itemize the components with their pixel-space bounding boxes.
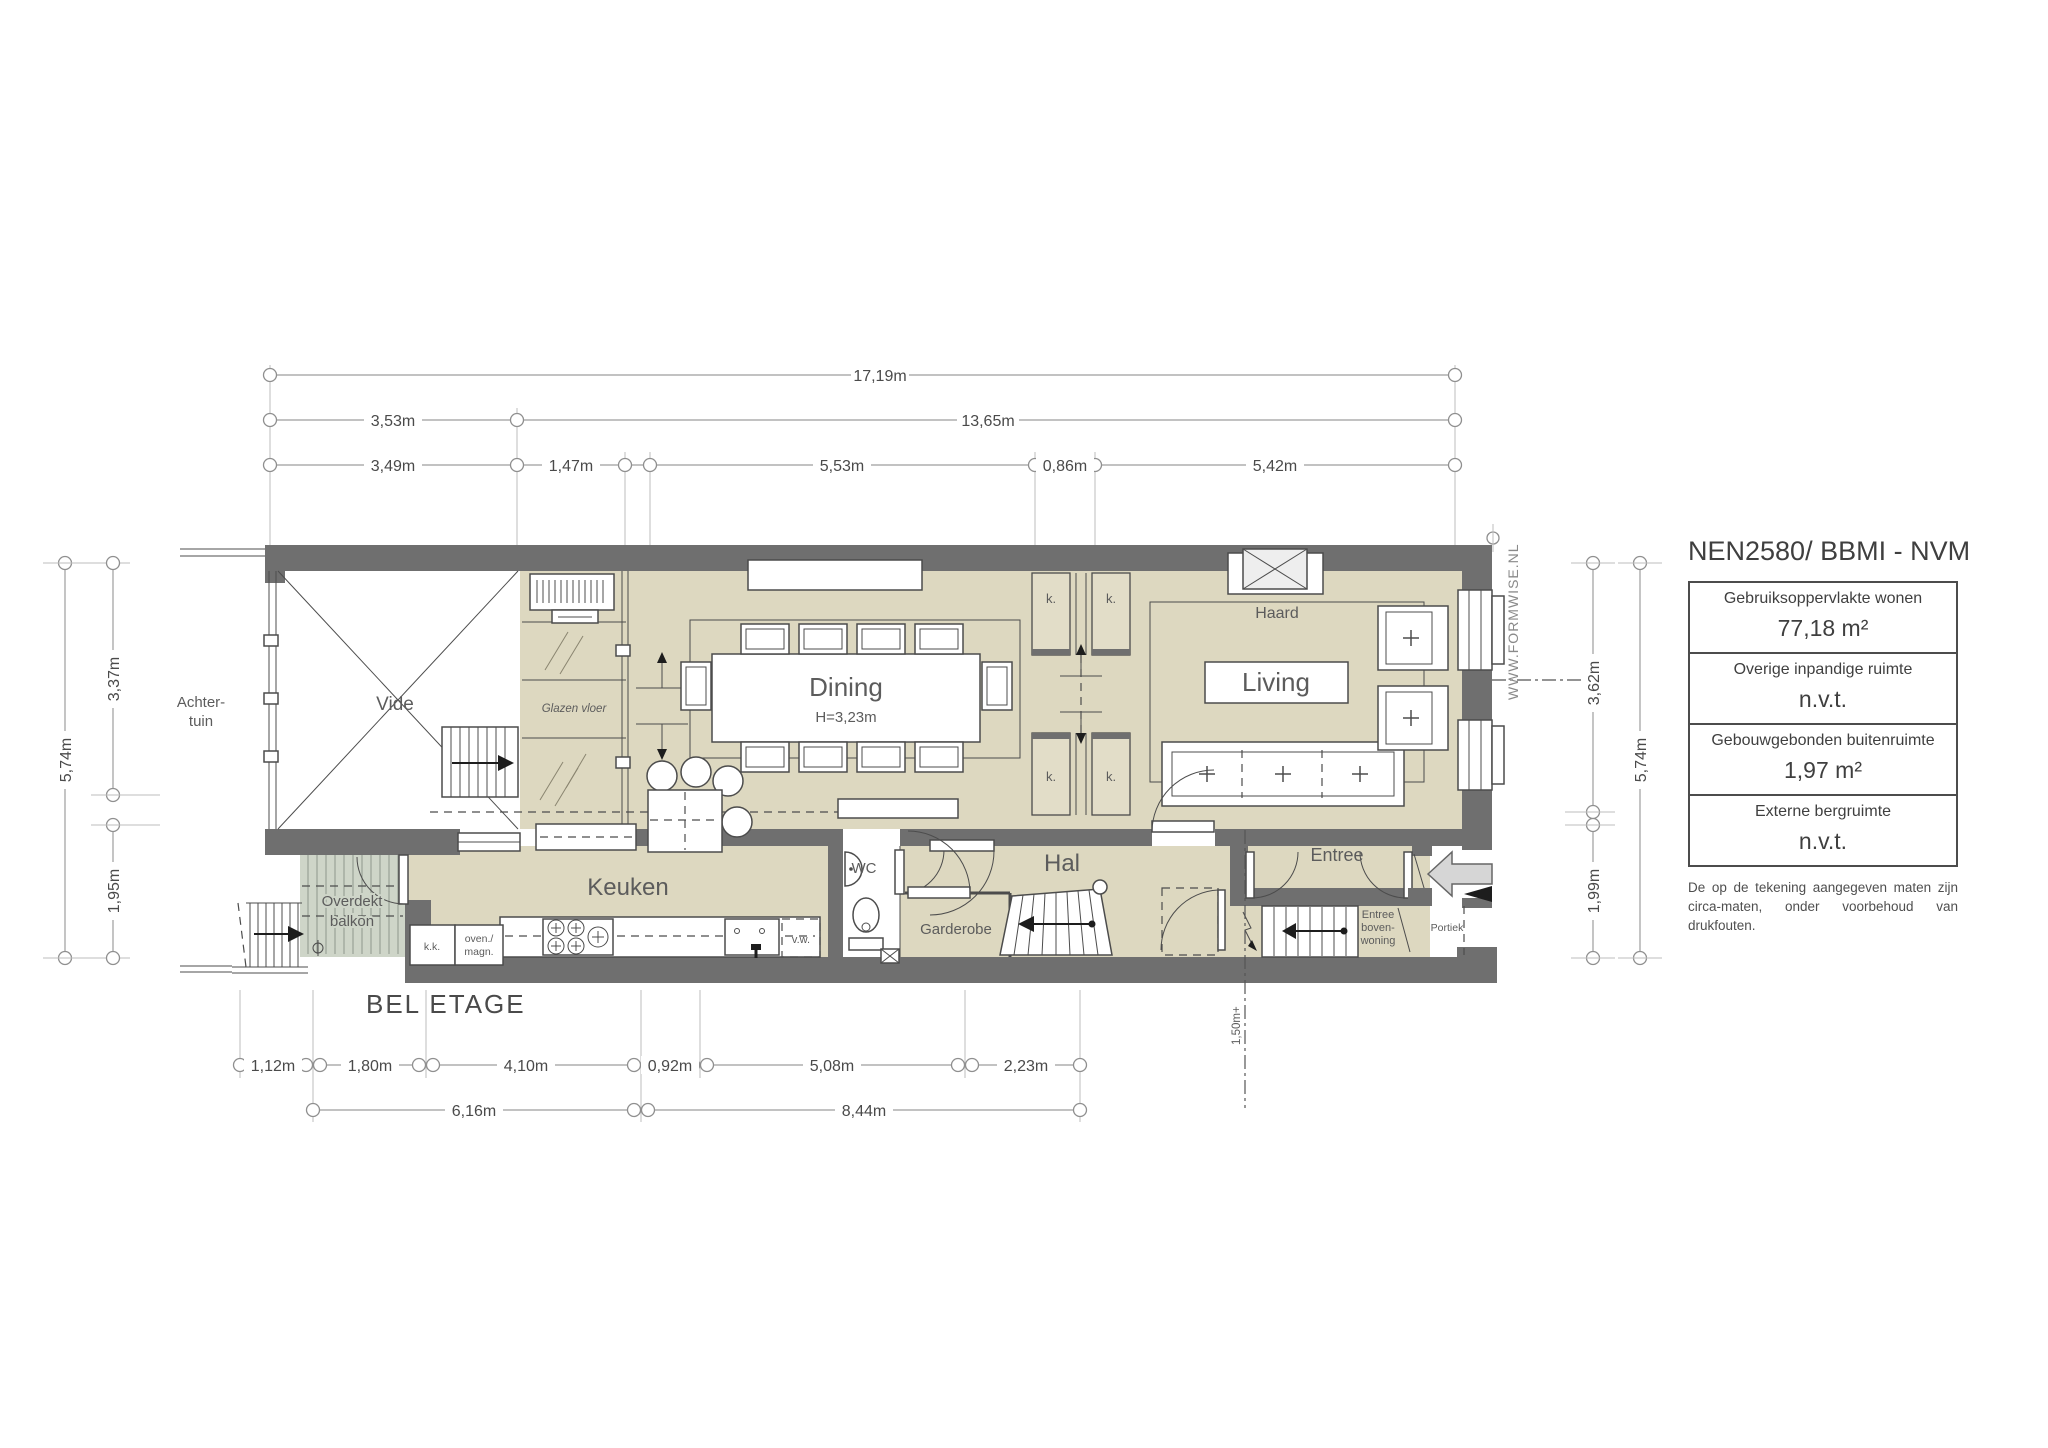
label-oven-1: oven./ (465, 933, 494, 945)
dim-top-a: 3,53m (371, 413, 415, 430)
dim-top-b: 13,65m (961, 413, 1014, 430)
legend-row-wonen: Gebruiksoppervlakte wonen 77,18 m² (1690, 583, 1956, 654)
legend-row-value: 1,97 m² (1694, 757, 1952, 784)
label-portiek: Portiek (1431, 922, 1464, 934)
label-dining-height: H=3,23m (815, 709, 876, 726)
dim-bot-c: 4,10m (504, 1058, 548, 1075)
label-bovenwoning-1: Entree (1362, 909, 1394, 921)
label-oven-2: magn. (464, 946, 493, 958)
dim-right-b: 1,99m (1586, 869, 1603, 913)
label-glazen-vloer: Glazen vloer (542, 703, 608, 715)
legend-row-label: Overige inpandige ruimte (1694, 661, 1952, 679)
label-balkon-1: Overdekt (322, 893, 384, 910)
label-achtertuin-2: tuin (189, 713, 213, 730)
label-kast-1: k. (1046, 591, 1056, 606)
dim-top-c3: 5,53m (820, 458, 864, 475)
watermark-text: WWW.FORMWISE.NL (1505, 543, 1521, 700)
floorplan-page: 17,19m 3,53m 13,65m 3,49m 1,47m 5,53m 0,… (0, 0, 2048, 1448)
dim-bot-h: 8,44m (842, 1103, 886, 1120)
label-koelkast: k.k. (424, 941, 440, 953)
dim-right-outer: 5,74m (1633, 738, 1650, 782)
dim-bot-g: 6,16m (452, 1103, 496, 1120)
dim-top-c2: 1,47m (549, 458, 593, 475)
dim-bot-d: 0,92m (648, 1058, 692, 1075)
dim-right-a: 3,62m (1586, 661, 1603, 705)
legend-row-buitenruimte: Gebouwgebonden buitenruimte 1,97 m² (1690, 725, 1956, 796)
legend-disclaimer: De op de tekening aangegeven maten zijn … (1688, 879, 1958, 936)
legend-row-value: n.v.t. (1694, 828, 1952, 855)
dim-bot-a: 1,12m (251, 1058, 295, 1075)
label-entree: Entree (1310, 845, 1363, 865)
legend-row-label: Externe bergruimte (1694, 803, 1952, 821)
dim-bot-e: 5,08m (810, 1058, 854, 1075)
label-bovenwoning-3: woning (1360, 935, 1396, 947)
dim-top-c5: 5,42m (1253, 458, 1297, 475)
floor-title: BEL ETAGE (366, 989, 526, 1019)
legend-table: Gebruiksoppervlakte wonen 77,18 m² Overi… (1688, 581, 1958, 867)
label-garderobe: Garderobe (920, 921, 992, 938)
legend-panel: NEN2580/ BBMI - NVM Gebruiksoppervlakte … (1688, 536, 1960, 936)
legend-title: NEN2580/ BBMI - NVM (1688, 536, 1960, 567)
dim-top-c4: 0,86m (1043, 458, 1087, 475)
dim-top-total: 17,19m (853, 368, 906, 385)
legend-row-value: 77,18 m² (1694, 615, 1952, 642)
label-vide: Vide (376, 694, 414, 715)
label-kast-3: k. (1046, 769, 1056, 784)
label-balkon-2: balkon (330, 913, 374, 930)
dim-bot-b: 1,80m (348, 1058, 392, 1075)
label-bovenwoning-2: boven- (1361, 922, 1395, 934)
legend-row-value: n.v.t. (1694, 686, 1952, 713)
label-keuken: Keuken (587, 874, 668, 901)
legend-row-label: Gebruiksoppervlakte wonen (1694, 590, 1952, 608)
label-vaatwasser: v.w. (792, 934, 810, 946)
label-living: Living (1242, 667, 1310, 697)
label-wc: WC (852, 860, 877, 877)
dim-bot-f: 2,23m (1004, 1058, 1048, 1075)
label-achtertuin-1: Achter- (177, 694, 225, 711)
label-dining: Dining (809, 672, 883, 702)
dim-left-b: 1,95m (106, 869, 123, 913)
label-kast-2: k. (1106, 591, 1116, 606)
label-hal: Hal (1044, 850, 1080, 877)
label-haard: Haard (1255, 605, 1299, 622)
legend-row-bergruimte: Externe bergruimte n.v.t. (1690, 796, 1956, 865)
dim-left-a: 3,37m (106, 657, 123, 701)
label-level: 1,50m+ (1231, 1006, 1243, 1045)
fireplace (1228, 549, 1323, 594)
legend-row-inpandig: Overige inpandige ruimte n.v.t. (1690, 654, 1956, 725)
dim-left-outer: 5,74m (58, 738, 75, 782)
label-kast-4: k. (1106, 769, 1116, 784)
vide-stairs (442, 727, 518, 797)
dim-top-c1: 3,49m (371, 458, 415, 475)
legend-row-label: Gebouwgebonden buitenruimte (1694, 732, 1952, 750)
